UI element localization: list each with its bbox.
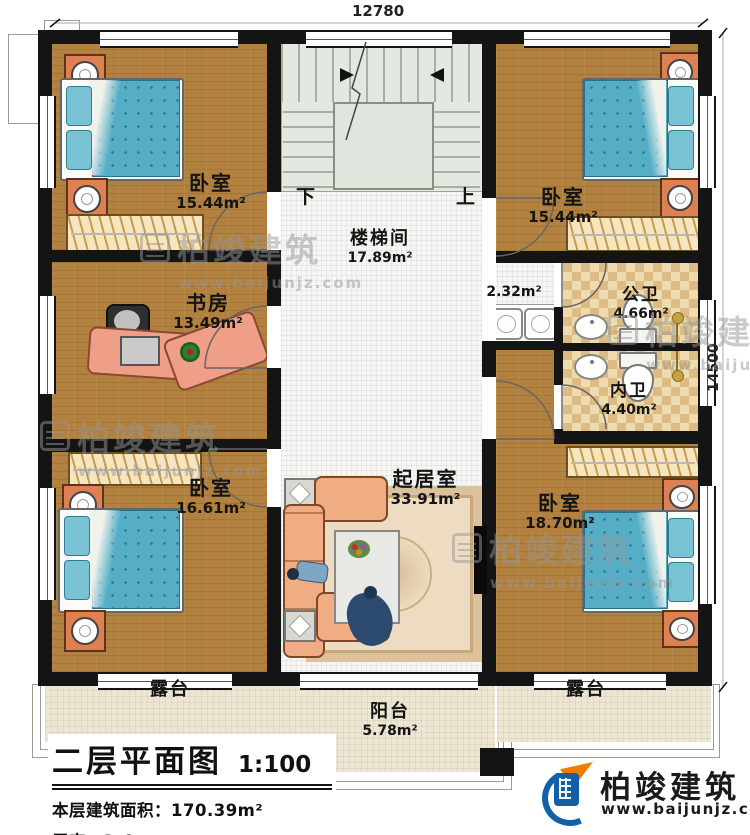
- stair-flight-left: [283, 102, 333, 188]
- pillow: [66, 130, 92, 170]
- room-area: 17.89m²: [330, 250, 430, 266]
- room-name: 内卫: [588, 382, 670, 402]
- wash-basin: [524, 308, 557, 340]
- balcony-door: [300, 672, 478, 690]
- floor-height-text: 层高：3.4m: [52, 828, 332, 835]
- brand-logo-icon: [542, 762, 594, 820]
- floor-plan: 12780 14500 卧室 15.44m² 卧室 15.44m² 楼梯间 17…: [0, 0, 750, 835]
- room-area: 15.44m²: [508, 209, 618, 226]
- room-label-public-bath: 公卫 4.66m²: [600, 286, 682, 322]
- plan-title: 二层平面图: [52, 736, 222, 781]
- brand-logo: 柏竣建筑 www.baijunjz.com: [538, 758, 743, 826]
- pillow: [668, 562, 694, 602]
- flowers-icon: [348, 540, 370, 558]
- door-opening: [267, 306, 281, 368]
- lamp-icon: [71, 617, 99, 645]
- title-underline: [52, 784, 332, 786]
- tv: [474, 526, 487, 594]
- room-name: 卧室: [508, 186, 618, 209]
- door-opening: [554, 385, 563, 429]
- room-label-bedroom-tl: 卧室 15.44m²: [156, 172, 266, 212]
- room-label-hallway: 2.32m²: [483, 284, 545, 300]
- room-label-bedroom-br: 卧室 18.70m²: [505, 492, 615, 532]
- room-label-stairwell: 楼梯间 17.89m²: [330, 229, 430, 266]
- dimension-height: 14500: [706, 343, 722, 392]
- wardrobe: [66, 214, 204, 252]
- room-name: 楼梯间: [330, 229, 430, 250]
- room-name: 卧室: [156, 172, 266, 195]
- door-opening: [482, 377, 496, 439]
- room-name: 阳台: [344, 702, 436, 723]
- room-label-bedroom-tr: 卧室 15.44m²: [508, 186, 618, 226]
- room-area: 4.66m²: [600, 306, 682, 322]
- pillow: [66, 86, 92, 126]
- person-head: [364, 586, 377, 599]
- room-label-terrace-right: 露台: [544, 680, 628, 701]
- window: [100, 30, 238, 48]
- wall: [482, 251, 712, 263]
- wall: [38, 439, 281, 452]
- window: [306, 30, 452, 48]
- bathroom-sink: [574, 354, 608, 380]
- wall: [554, 343, 712, 351]
- lamp-icon: [73, 185, 101, 213]
- room-label-living: 起居室 33.91m²: [378, 468, 473, 508]
- room-name: 露台: [128, 680, 212, 701]
- person-head: [287, 568, 299, 580]
- balcony-pillar: [480, 748, 514, 776]
- logo-building: [554, 773, 579, 806]
- room-name: 卧室: [156, 477, 266, 500]
- room-label-study: 书房 13.49m²: [158, 292, 258, 332]
- wardrobe: [566, 446, 700, 478]
- pillow: [668, 518, 694, 558]
- wall: [482, 341, 563, 350]
- room-area: 18.70m²: [505, 515, 615, 532]
- room-label-balcony: 阳台 5.78m²: [344, 702, 436, 739]
- room-label-ensuite-bath: 内卫 4.40m²: [588, 382, 670, 418]
- nightstand: [662, 610, 702, 648]
- window: [38, 96, 56, 188]
- room-name: 书房: [158, 292, 258, 315]
- stair-landing: [333, 102, 434, 190]
- pillow: [668, 130, 694, 170]
- room-area: 4.40m²: [588, 402, 670, 418]
- room-area: 33.91m²: [378, 491, 473, 508]
- door-opening: [482, 198, 496, 256]
- bed-sheet: [636, 80, 666, 175]
- stair-flight-top: [281, 40, 482, 102]
- plant-icon: [180, 342, 200, 362]
- nightstand: [660, 178, 700, 218]
- laptop-icon: [120, 336, 160, 366]
- door-opening: [267, 192, 281, 250]
- window: [524, 30, 670, 48]
- window: [698, 486, 716, 604]
- window: [38, 296, 56, 394]
- room-name: 公卫: [600, 286, 682, 306]
- title-block: 二层平面图 1:100 本层建筑面积：170.39m² 层高：3.4m: [48, 734, 336, 835]
- bed-sheet: [90, 80, 122, 175]
- room-name: 卧室: [505, 492, 615, 515]
- wall: [38, 250, 281, 262]
- lamp-icon: [669, 485, 695, 509]
- bedroom-br-entry-floor: [496, 350, 554, 444]
- room-label-bedroom-bl: 卧室 16.61m²: [156, 477, 266, 517]
- side-table: [284, 610, 316, 642]
- plan-scale: 1:100: [238, 752, 311, 778]
- window: [698, 96, 716, 188]
- pillow: [64, 560, 90, 600]
- pillow: [668, 86, 694, 126]
- dimension-width: 12780: [352, 2, 404, 20]
- room-area: 13.49m²: [158, 315, 258, 332]
- person: [295, 560, 329, 584]
- room-area: 2.32m²: [483, 284, 545, 300]
- lamp-icon: [669, 617, 695, 641]
- bed-sheet: [90, 510, 122, 607]
- floor-area-text: 本层建筑面积：170.39m²: [52, 797, 332, 821]
- pillow: [64, 516, 90, 556]
- wall: [554, 431, 712, 444]
- room-label-terrace-left: 露台: [128, 680, 212, 701]
- room-area: 16.61m²: [156, 500, 266, 517]
- lamp-icon: [667, 185, 693, 211]
- door-opening: [554, 263, 563, 307]
- room-name: 起居室: [378, 468, 473, 491]
- stair-up-label: 上: [456, 182, 475, 209]
- nightstand: [64, 610, 106, 652]
- title-underline: [52, 788, 332, 790]
- door-opening: [267, 449, 281, 507]
- bed-sheet: [636, 512, 666, 607]
- towel-rail-end: [672, 370, 684, 382]
- armchair: [314, 476, 388, 522]
- window: [38, 488, 56, 600]
- stair-down-label: 下: [296, 182, 315, 209]
- brand-website: www.baijunjz.com: [601, 800, 750, 818]
- room-name: 露台: [544, 680, 628, 701]
- room-area: 5.78m²: [344, 723, 436, 739]
- stair-flight-right: [430, 102, 480, 188]
- room-area: 15.44m²: [156, 195, 266, 212]
